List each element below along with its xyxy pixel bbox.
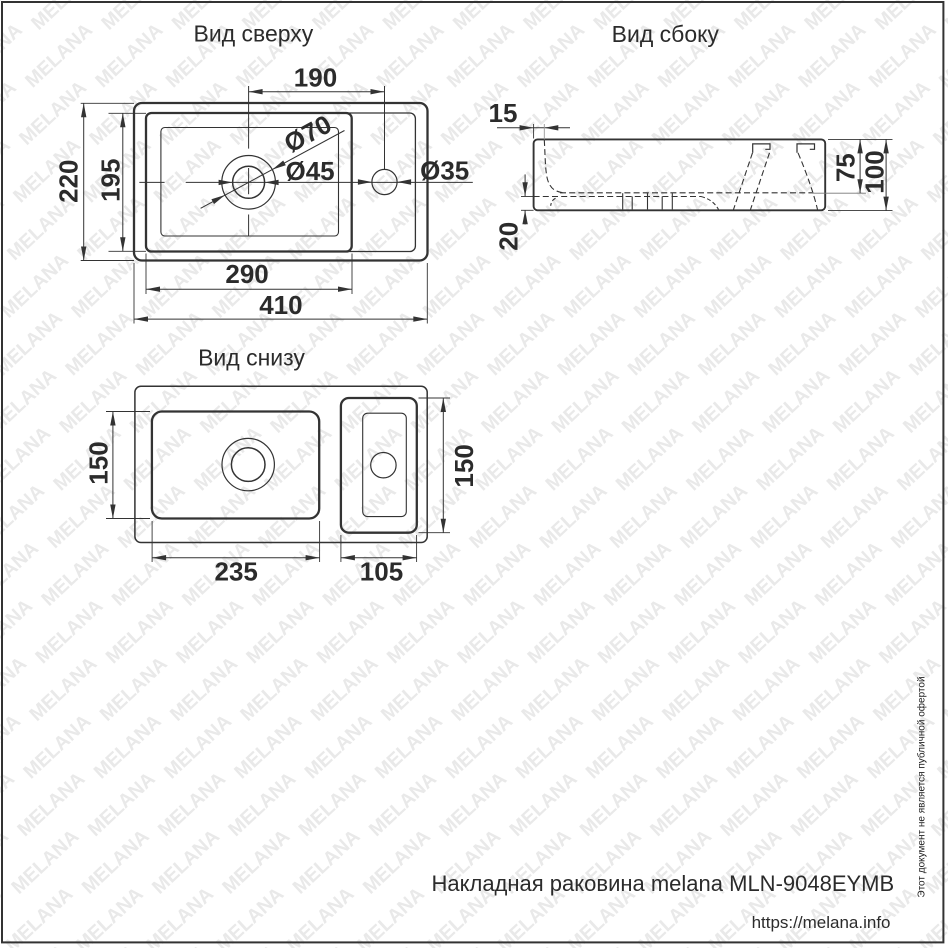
svg-text:MELANA: MELANA — [459, 538, 535, 611]
svg-text:MELANA: MELANA — [465, 480, 541, 553]
svg-text:MELANA: MELANA — [447, 653, 523, 726]
svg-text:MELANA: MELANA — [523, 595, 599, 668]
svg-text:Вид сверху: Вид сверху — [194, 21, 314, 47]
svg-text:195: 195 — [96, 159, 126, 202]
svg-text:MELANA: MELANA — [7, 826, 83, 899]
svg-text:105: 105 — [360, 557, 403, 587]
svg-text:MELANA: MELANA — [734, 595, 810, 668]
svg-text:MELANA: MELANA — [752, 422, 828, 495]
svg-text:MELANA: MELANA — [642, 134, 718, 207]
svg-text:MELANA: MELANA — [794, 19, 870, 92]
svg-text:MELANA: MELANA — [529, 538, 605, 611]
svg-text:MELANA: MELANA — [722, 710, 798, 783]
svg-text:MELANA: MELANA — [758, 365, 834, 438]
svg-text:410: 410 — [259, 290, 302, 320]
svg-text:MELANA: MELANA — [377, 653, 453, 726]
svg-text:290: 290 — [225, 259, 268, 289]
svg-text:MELANA: MELANA — [865, 19, 941, 92]
svg-text:MELANA: MELANA — [419, 250, 495, 323]
svg-text:MELANA: MELANA — [72, 883, 148, 948]
svg-text:MELANA: MELANA — [658, 653, 734, 726]
svg-text:MELANA: MELANA — [0, 250, 73, 323]
svg-text:MELANA: MELANA — [630, 250, 706, 323]
svg-text:MELANA: MELANA — [941, 0, 948, 35]
svg-text:MELANA: MELANA — [78, 826, 154, 899]
svg-text:150: 150 — [84, 441, 114, 484]
svg-text:MELANA: MELANA — [776, 192, 852, 265]
svg-text:MELANA: MELANA — [519, 0, 595, 35]
svg-text:MELANA: MELANA — [97, 0, 173, 35]
svg-text:MELANA: MELANA — [817, 480, 893, 553]
svg-text:MELANA: MELANA — [477, 365, 553, 438]
svg-text:MELANA: MELANA — [770, 250, 846, 323]
svg-text:MELANA: MELANA — [811, 538, 887, 611]
svg-text:MELANA: MELANA — [15, 77, 91, 150]
svg-text:MELANA: MELANA — [547, 365, 623, 438]
svg-text:MELANA: MELANA — [43, 480, 119, 553]
svg-text:MELANA: MELANA — [313, 595, 389, 668]
svg-text:MELANA: MELANA — [483, 307, 559, 380]
svg-text:MELANA: MELANA — [383, 595, 459, 668]
svg-text:MELANA: MELANA — [541, 422, 617, 495]
svg-text:MELANA: MELANA — [0, 422, 55, 495]
svg-text:150: 150 — [449, 444, 479, 487]
svg-text:MELANA: MELANA — [706, 192, 782, 265]
svg-text:MELANA: MELANA — [712, 134, 788, 207]
svg-text:MELANA: MELANA — [576, 768, 652, 841]
svg-text:MELANA: MELANA — [359, 826, 435, 899]
svg-text:20: 20 — [494, 222, 524, 251]
svg-text:220: 220 — [53, 160, 83, 203]
svg-text:MELANA: MELANA — [800, 0, 876, 35]
svg-text:MELANA: MELANA — [230, 710, 306, 783]
svg-text:MELANA: MELANA — [805, 595, 881, 668]
svg-text:MELANA: MELANA — [728, 653, 804, 726]
svg-text:MELANA: MELANA — [242, 595, 318, 668]
svg-text:MELANA: MELANA — [505, 768, 581, 841]
svg-text:MELANA: MELANA — [27, 0, 103, 35]
svg-text:MELANA: MELANA — [212, 883, 288, 948]
svg-text:MELANA: MELANA — [353, 883, 429, 948]
svg-text:MELANA: MELANA — [682, 422, 758, 495]
svg-text:MELANA: MELANA — [829, 365, 905, 438]
svg-text:Накладная раковина melana MLN-: Накладная раковина melana MLN-9048EYMB — [431, 871, 894, 896]
svg-text:MELANA: MELANA — [489, 250, 565, 323]
svg-text:MELANA: MELANA — [823, 422, 899, 495]
svg-text:MELANA: MELANA — [218, 826, 294, 899]
svg-text:MELANA: MELANA — [160, 710, 236, 783]
svg-text:MELANA: MELANA — [612, 422, 688, 495]
svg-text:MELANA: MELANA — [863, 710, 939, 783]
svg-text:MELANA: MELANA — [453, 595, 529, 668]
svg-text:Вид сбоку: Вид сбоку — [612, 21, 720, 47]
svg-text:MELANA: MELANA — [594, 595, 670, 668]
svg-text:MELANA: MELANA — [933, 710, 948, 783]
svg-text:MELANA: MELANA — [793, 710, 869, 783]
svg-text:MELANA: MELANA — [835, 307, 911, 380]
svg-text:MELANA: MELANA — [600, 538, 676, 611]
svg-text:MELANA: MELANA — [746, 480, 822, 553]
svg-text:MELANA: MELANA — [847, 192, 923, 265]
svg-text:MELANA: MELANA — [148, 826, 224, 899]
svg-text:MELANA: MELANA — [61, 307, 137, 380]
svg-text:MELANA: MELANA — [724, 19, 800, 92]
svg-text:MELANA: MELANA — [646, 768, 722, 841]
svg-text:MELANA: MELANA — [379, 0, 455, 35]
svg-text:MELANA: MELANA — [96, 653, 172, 726]
svg-text:MELANA: MELANA — [624, 307, 700, 380]
svg-text:MELANA: MELANA — [371, 710, 447, 783]
svg-text:MELANA: MELANA — [716, 768, 792, 841]
svg-text:MELANA: MELANA — [869, 653, 945, 726]
svg-text:75: 75 — [831, 153, 861, 182]
svg-text:MELANA: MELANA — [90, 710, 166, 783]
svg-text:MELANA: MELANA — [676, 480, 752, 553]
svg-text:MELANA: MELANA — [308, 0, 384, 35]
svg-text:MELANA: MELANA — [652, 710, 728, 783]
svg-text:MELANA: MELANA — [337, 365, 413, 438]
svg-text:MELANA: MELANA — [471, 422, 547, 495]
svg-text:MELANA: MELANA — [740, 538, 816, 611]
svg-text:MELANA: MELANA — [284, 192, 360, 265]
svg-text:MELANA: MELANA — [283, 883, 359, 948]
svg-text:MELANA: MELANA — [449, 0, 525, 35]
svg-text:MELANA: MELANA — [582, 710, 658, 783]
svg-text:MELANA: MELANA — [365, 768, 441, 841]
svg-text:MELANA: MELANA — [166, 653, 242, 726]
svg-text:MELANA: MELANA — [19, 710, 95, 783]
svg-text:MELANA: MELANA — [25, 653, 101, 726]
svg-text:MELANA: MELANA — [120, 422, 196, 495]
svg-text:MELANA: MELANA — [511, 710, 587, 783]
svg-text:MELANA: MELANA — [224, 768, 300, 841]
svg-text:235: 235 — [215, 557, 258, 587]
svg-text:MELANA: MELANA — [859, 77, 935, 150]
svg-text:MELANA: MELANA — [154, 768, 230, 841]
svg-text:MELANA: MELANA — [565, 192, 641, 265]
svg-text:MELANA: MELANA — [172, 595, 248, 668]
svg-text:MELANA: MELANA — [730, 0, 806, 35]
svg-text:MELANA: MELANA — [443, 19, 519, 92]
svg-text:MELANA: MELANA — [799, 653, 875, 726]
svg-text:MELANA: MELANA — [55, 365, 131, 438]
svg-text:Вид снизу: Вид снизу — [198, 345, 305, 371]
svg-text:MELANA: MELANA — [553, 307, 629, 380]
svg-text:MELANA: MELANA — [588, 653, 664, 726]
svg-text:MELANA: MELANA — [126, 365, 202, 438]
svg-text:MELANA: MELANA — [214, 192, 290, 265]
svg-text:MELANA: MELANA — [248, 538, 324, 611]
svg-text:MELANA: MELANA — [196, 365, 272, 438]
svg-text:MELANA: MELANA — [517, 653, 593, 726]
svg-text:MELANA: MELANA — [295, 768, 371, 841]
svg-text:MELANA: MELANA — [301, 710, 377, 783]
svg-text:MELANA: MELANA — [0, 941, 1, 948]
svg-text:MELANA: MELANA — [413, 307, 489, 380]
svg-text:190: 190 — [294, 63, 337, 93]
svg-text:MELANA: MELANA — [441, 710, 517, 783]
svg-text:MELANA: MELANA — [289, 826, 365, 899]
svg-text:MELANA: MELANA — [307, 653, 383, 726]
svg-text:MELANA: MELANA — [435, 768, 511, 841]
svg-text:MELANA: MELANA — [559, 250, 635, 323]
svg-text:Ø45: Ø45 — [286, 156, 335, 186]
svg-text:MELANA: MELANA — [355, 192, 431, 265]
svg-text:MELANA: MELANA — [21, 19, 97, 92]
svg-text:MELANA: MELANA — [84, 768, 160, 841]
svg-text:MELANA: MELANA — [373, 19, 449, 92]
svg-text:MELANA: MELANA — [13, 768, 89, 841]
svg-text:15: 15 — [489, 98, 518, 128]
svg-text:MELANA: MELANA — [190, 422, 266, 495]
svg-text:MELANA: MELANA — [236, 653, 312, 726]
svg-text:https://melana.info: https://melana.info — [752, 913, 891, 932]
svg-text:MELANA: MELANA — [935, 19, 948, 92]
svg-text:MELANA: MELANA — [688, 365, 764, 438]
svg-text:MELANA: MELANA — [343, 307, 419, 380]
svg-text:MELANA: MELANA — [91, 19, 167, 92]
svg-text:MELANA: MELANA — [144, 192, 220, 265]
svg-text:MELANA: MELANA — [108, 538, 184, 611]
svg-text:MELANA: MELANA — [535, 480, 611, 553]
svg-text:MELANA: MELANA — [260, 422, 336, 495]
svg-text:MELANA: MELANA — [1, 883, 77, 948]
svg-text:MELANA: MELANA — [670, 538, 746, 611]
svg-text:MELANA: MELANA — [664, 595, 740, 668]
svg-text:MELANA: MELANA — [787, 768, 863, 841]
svg-text:MELANA: MELANA — [407, 365, 483, 438]
svg-text:MELANA: MELANA — [694, 307, 770, 380]
svg-text:MELANA: MELANA — [425, 192, 501, 265]
svg-text:MELANA: MELANA — [875, 595, 948, 668]
svg-text:MELANA: MELANA — [102, 595, 178, 668]
svg-text:Этот документ не является публ: Этот документ не является публичной офер… — [916, 676, 928, 897]
svg-text:100: 100 — [860, 150, 890, 193]
svg-text:MELANA: MELANA — [893, 422, 948, 495]
svg-text:MELANA: MELANA — [700, 250, 776, 323]
svg-text:MELANA: MELANA — [37, 538, 113, 611]
svg-text:MELANA: MELANA — [142, 883, 218, 948]
svg-text:MELANA: MELANA — [31, 595, 107, 668]
svg-text:MELANA: MELANA — [618, 365, 694, 438]
svg-text:MELANA: MELANA — [266, 365, 342, 438]
svg-text:MELANA: MELANA — [220, 134, 296, 207]
svg-text:MELANA: MELANA — [764, 307, 840, 380]
svg-text:MELANA: MELANA — [841, 250, 917, 323]
svg-text:Ø35: Ø35 — [420, 156, 469, 186]
svg-text:MELANA: MELANA — [513, 19, 589, 92]
svg-text:MELANA: MELANA — [871, 0, 947, 35]
svg-text:MELANA: MELANA — [606, 480, 682, 553]
